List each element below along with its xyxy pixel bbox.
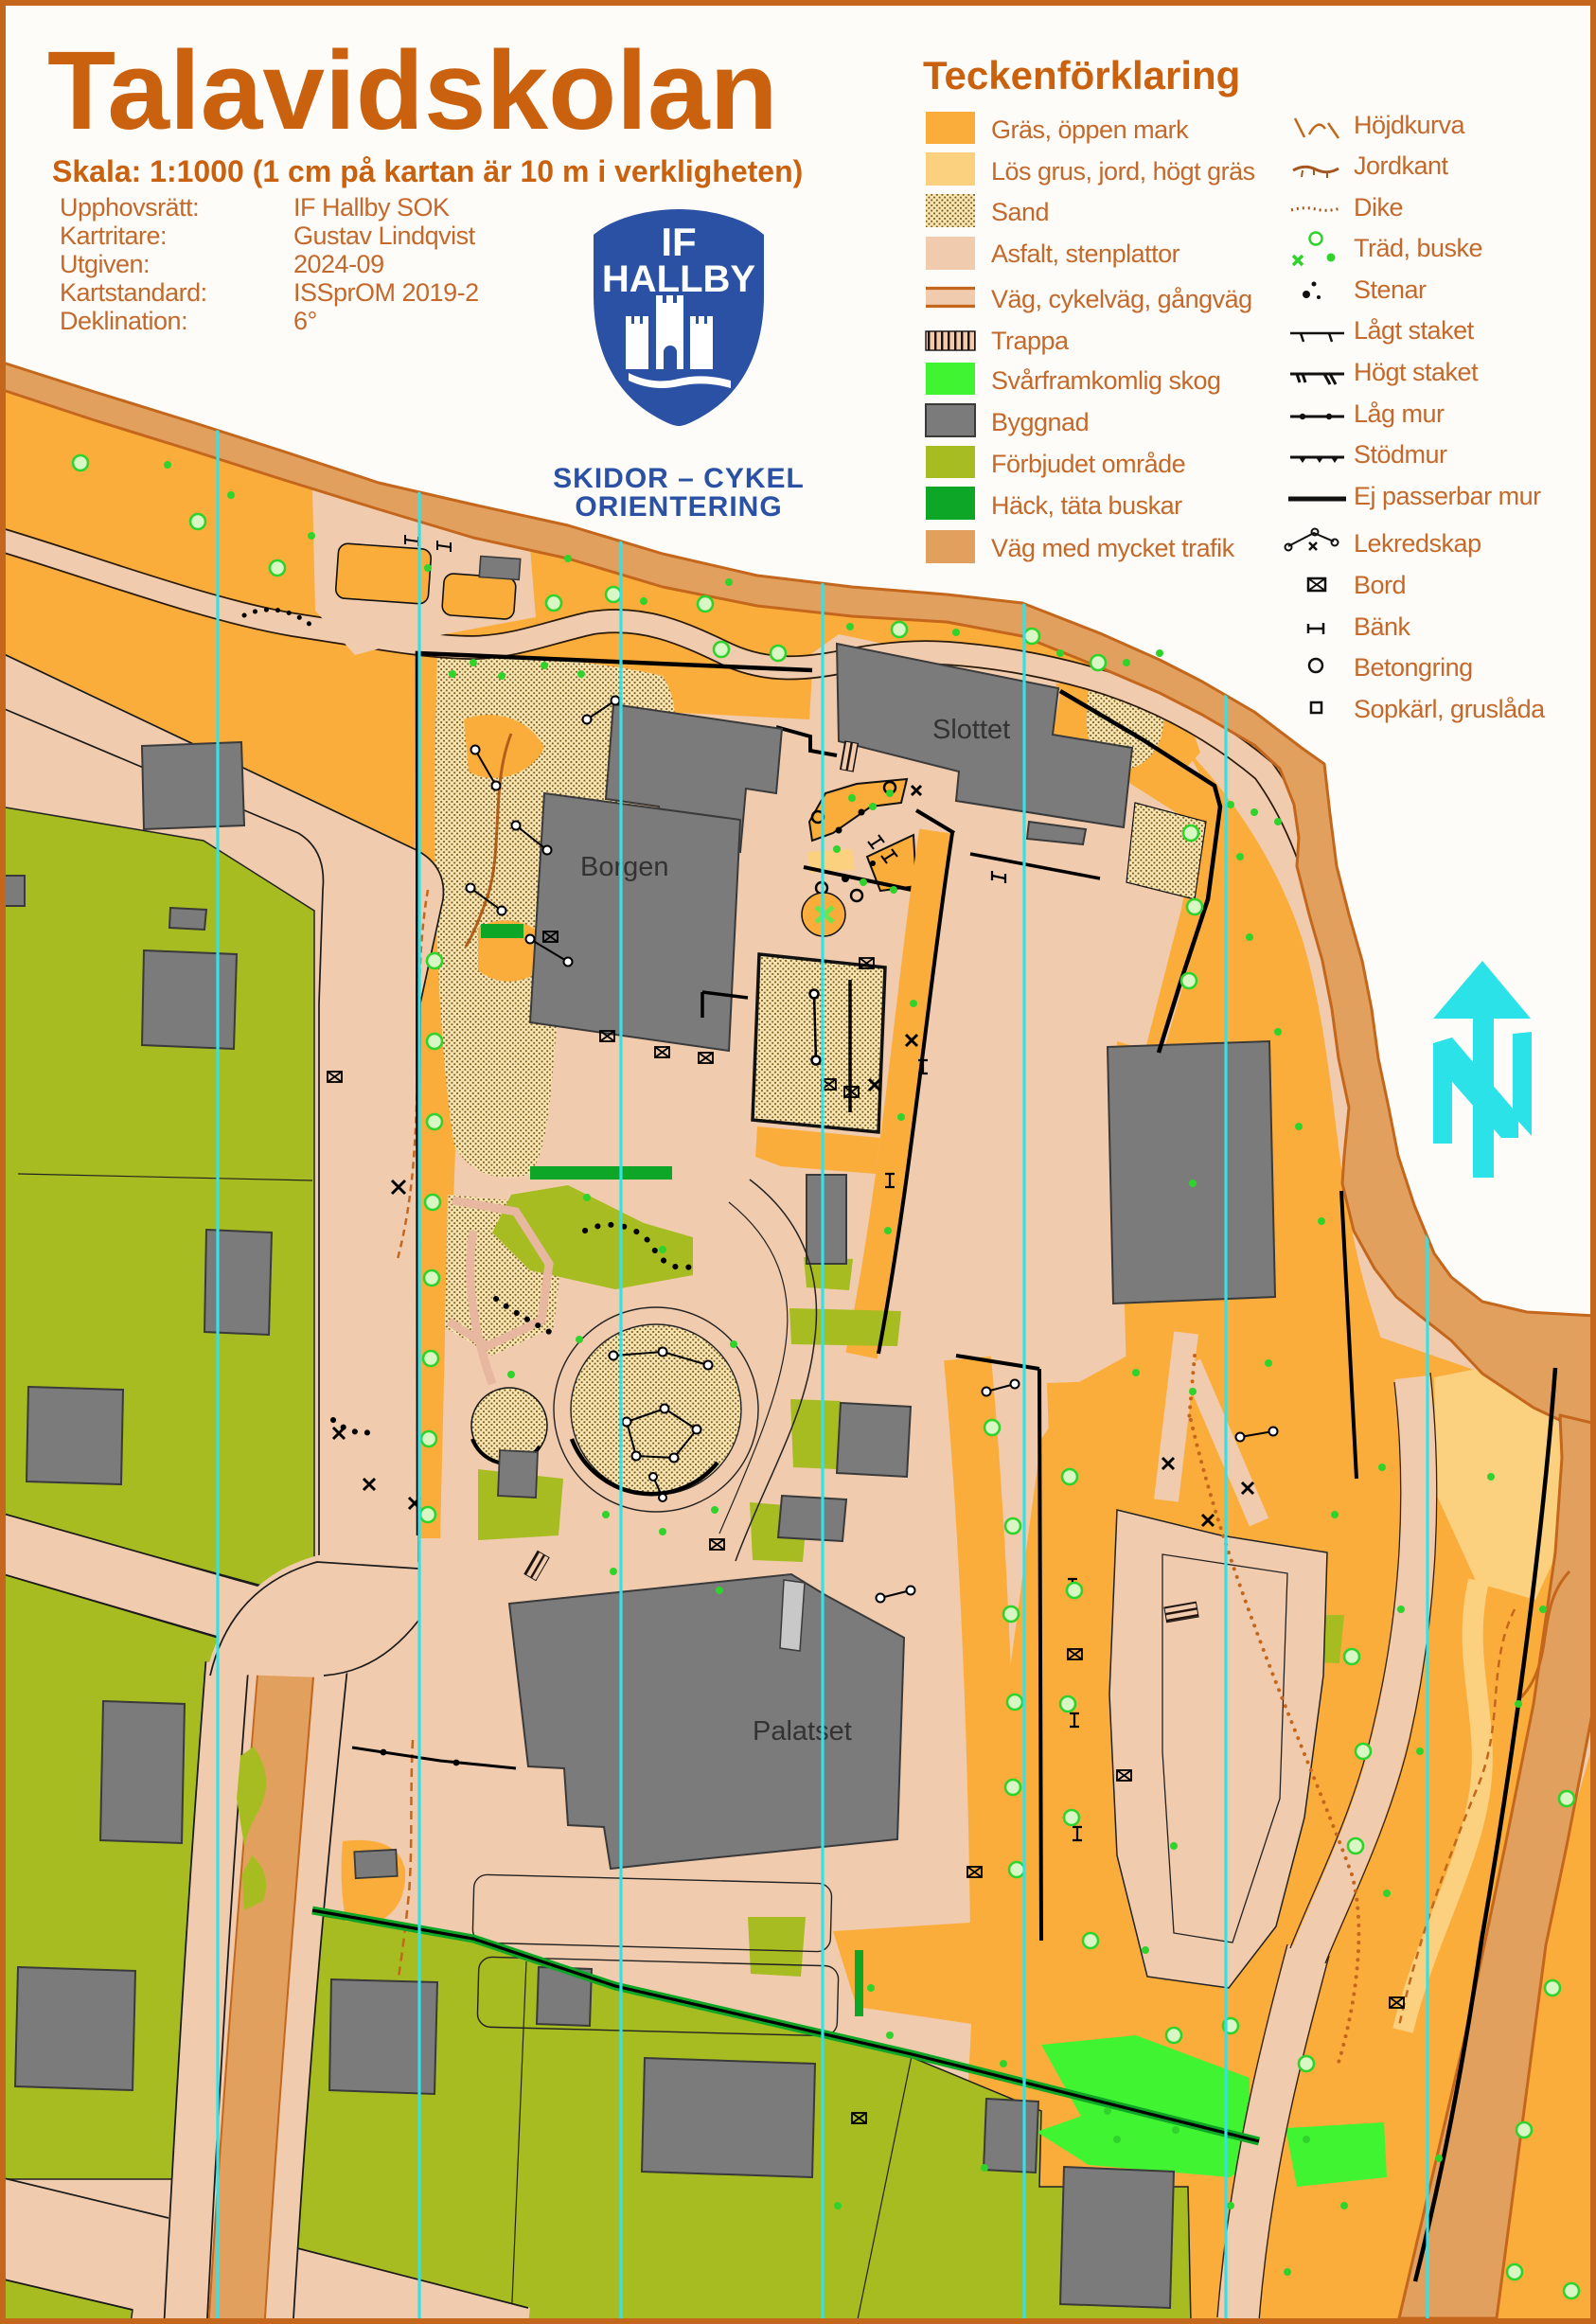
svg-text:Upphovsrätt:: Upphovsrätt: (60, 193, 199, 222)
svg-text:Trappa: Trappa (991, 327, 1070, 355)
svg-text:Bord: Bord (1354, 571, 1406, 599)
svg-text:Väg, cykelväg, gångväg: Väg, cykelväg, gångväg (991, 285, 1252, 313)
svg-text:Sopkärl, gruslåda: Sopkärl, gruslåda (1354, 695, 1546, 723)
svg-text:Deklination:: Deklination: (60, 307, 187, 335)
svg-text:Gräs, öppen mark: Gräs, öppen mark (991, 115, 1189, 144)
svg-text:Kartritare:: Kartritare: (60, 222, 167, 250)
svg-text:Väg med mycket trafik: Väg med mycket trafik (991, 534, 1235, 562)
svg-text:IF: IF (661, 220, 696, 264)
svg-text:Lekredskap: Lekredskap (1354, 529, 1481, 558)
svg-text:Gustav Lindqvist: Gustav Lindqvist (293, 222, 476, 250)
svg-text:Betongring: Betongring (1354, 653, 1473, 682)
svg-text:2024-09: 2024-09 (293, 250, 384, 278)
svg-text:Sand: Sand (991, 198, 1049, 226)
svg-text:IF Hallby SOK: IF Hallby SOK (293, 193, 450, 222)
svg-text:Höjdkurva: Höjdkurva (1354, 111, 1466, 139)
svg-text:Utgiven:: Utgiven: (60, 250, 150, 278)
svg-text:Byggnad: Byggnad (991, 408, 1089, 436)
svg-text:HALLBY: HALLBY (602, 258, 756, 300)
svg-text:Ej passerbar mur: Ej passerbar mur (1354, 482, 1541, 510)
svg-text:Jordkant: Jordkant (1354, 151, 1449, 180)
svg-text:Kartstandard:: Kartstandard: (60, 278, 207, 307)
svg-text:ORIENTERING: ORIENTERING (575, 491, 782, 523)
svg-text:Slottet: Slottet (932, 715, 1010, 745)
svg-text:Lös grus, jord, högt gräs: Lös grus, jord, högt gräs (991, 157, 1255, 186)
svg-text:Asfalt, stenplattor: Asfalt, stenplattor (991, 239, 1180, 268)
svg-text:Bänk: Bänk (1354, 612, 1411, 641)
svg-text:Svårframkomlig skog: Svårframkomlig skog (991, 366, 1221, 395)
svg-text:Träd, buske: Träd, buske (1354, 234, 1482, 262)
svg-text:Palatset: Palatset (753, 1716, 852, 1747)
svg-text:Häck, täta buskar: Häck, täta buskar (991, 491, 1182, 520)
svg-text:Högt staket: Högt staket (1354, 358, 1479, 386)
svg-text:Talavidskolan: Talavidskolan (47, 28, 778, 153)
svg-text:Låg mur: Låg mur (1354, 399, 1445, 428)
svg-text:6°: 6° (293, 307, 317, 335)
svg-text:ISSprOM 2019-2: ISSprOM 2019-2 (293, 278, 479, 307)
svg-text:Förbjudet område: Förbjudet område (991, 450, 1185, 478)
svg-text:Lågt staket: Lågt staket (1354, 316, 1475, 345)
svg-text:Stödmur: Stödmur (1354, 440, 1447, 469)
svg-text:Teckenförklaring: Teckenförklaring (923, 53, 1240, 98)
svg-text:Stenar: Stenar (1354, 275, 1427, 304)
svg-text:Skala: 1:1000 (1 cm på kartan: Skala: 1:1000 (1 cm på kartan är 10 m i … (52, 154, 803, 188)
svg-text:SKIDOR – CYKEL: SKIDOR – CYKEL (553, 463, 805, 494)
svg-text:Dike: Dike (1354, 193, 1403, 222)
svg-text:Borgen: Borgen (580, 852, 669, 882)
